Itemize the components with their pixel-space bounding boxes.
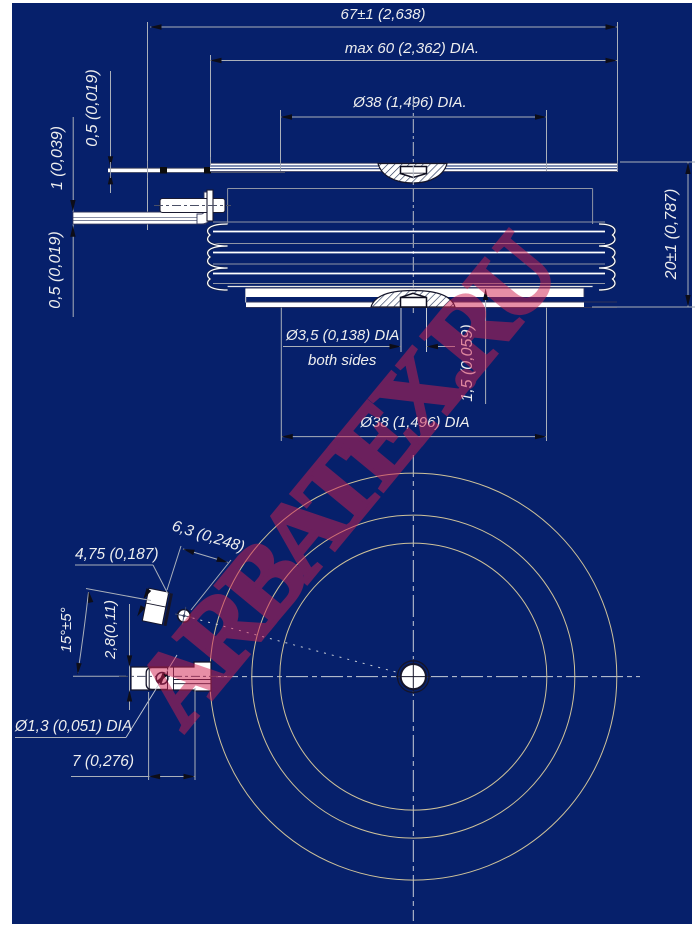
svg-text:0,5 (0,019): 0,5 (0,019) [84, 69, 101, 146]
svg-text:1 (0,039): 1 (0,039) [49, 126, 66, 190]
svg-text:Ø3,5 (0,138) DIA: Ø3,5 (0,138) DIA [285, 327, 399, 344]
svg-text:7 (0,276): 7 (0,276) [72, 753, 134, 770]
svg-text:20±1 (0,787): 20±1 (0,787) [663, 189, 680, 281]
svg-text:67±1 (2,638): 67±1 (2,638) [341, 6, 426, 23]
svg-text:4,75 (0,187): 4,75 (0,187) [75, 546, 159, 563]
svg-text:Ø1,3 (0,051) DIA: Ø1,3 (0,051) DIA [14, 718, 132, 735]
svg-text:15°±5°: 15°±5° [58, 607, 75, 652]
svg-text:max 60 (2,362) DIA.: max 60 (2,362) DIA. [345, 40, 479, 57]
svg-text:0,5 (0,019): 0,5 (0,019) [47, 231, 64, 308]
svg-text:2,8(0,11): 2,8(0,11) [102, 600, 119, 660]
svg-text:Ø38 (1,496) DIA.: Ø38 (1,496) DIA. [352, 94, 466, 111]
